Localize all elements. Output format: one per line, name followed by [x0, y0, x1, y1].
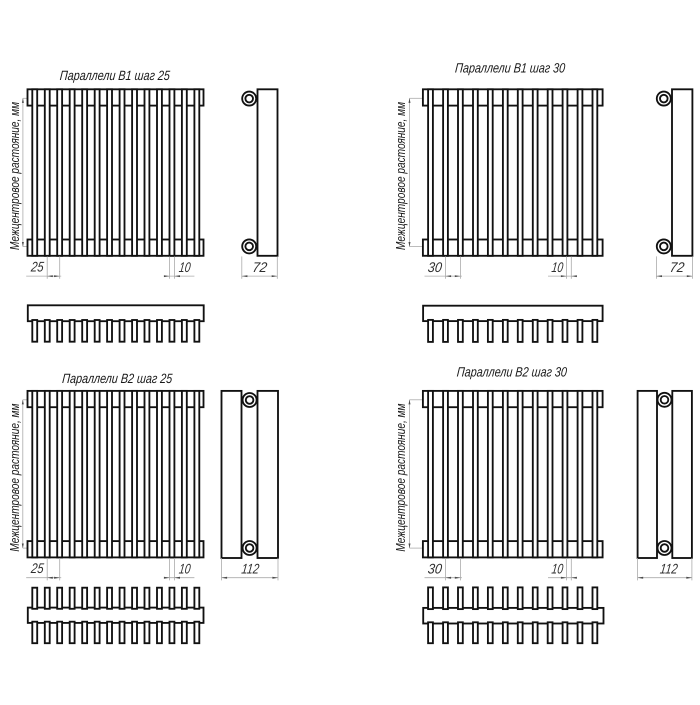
svg-text:Параллели В2 шаг 30: Параллели В2 шаг 30 [456, 365, 568, 380]
svg-text:112: 112 [241, 560, 261, 576]
svg-text:Межцентровое растояние, мм: Межцентровое растояние, мм [393, 404, 408, 552]
svg-text:10: 10 [551, 259, 565, 275]
svg-text:10: 10 [551, 560, 565, 576]
svg-text:10: 10 [178, 560, 192, 576]
svg-text:72: 72 [669, 259, 686, 275]
svg-text:Межцентровое растояние, мм: Межцентровое растояние, мм [393, 102, 408, 250]
svg-text:30: 30 [427, 259, 443, 275]
svg-text:Межцентровое растояние, мм: Межцентровое растояние, мм [7, 404, 22, 552]
svg-text:25: 25 [29, 258, 44, 274]
svg-text:Параллели В1 шаг 30: Параллели В1 шаг 30 [455, 60, 567, 75]
svg-text:Межцентровое растояние, мм: Межцентровое растояние, мм [7, 102, 22, 250]
svg-text:30: 30 [427, 560, 443, 576]
svg-text:72: 72 [252, 259, 269, 275]
svg-text:Параллели В1 шаг 25: Параллели В1 шаг 25 [59, 68, 171, 83]
svg-text:Параллели В2 шаг 25: Параллели В2 шаг 25 [62, 371, 174, 386]
svg-text:112: 112 [659, 560, 679, 576]
svg-text:25: 25 [29, 560, 44, 576]
svg-text:10: 10 [178, 259, 192, 275]
